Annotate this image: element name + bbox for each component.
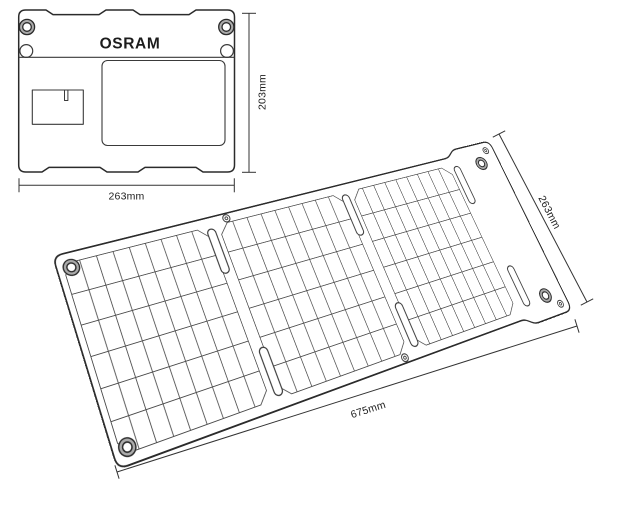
folded-height-label: 203mm [257, 74, 269, 110]
grommet-icon [219, 19, 234, 34]
folded-width-label: 263mm [108, 191, 144, 203]
connector-notch [65, 90, 68, 101]
connector-box-outline [32, 90, 83, 124]
brand-logo: OSRAM [100, 36, 161, 53]
technical-drawing-canvas: OSRAM 203mm 263mm 263mm 675mm [0, 0, 640, 506]
inner-panel-outline [102, 61, 225, 146]
eyelet-icon [221, 45, 234, 58]
unfolded-dimensions: 263mm 675mm [115, 131, 593, 479]
folded-panel-outline [19, 10, 235, 172]
unfolded-length-label: 675mm [349, 399, 387, 421]
folded-panel-view: OSRAM [19, 10, 235, 172]
eyelet-icon [20, 45, 33, 58]
grommet-icon [19, 19, 34, 34]
